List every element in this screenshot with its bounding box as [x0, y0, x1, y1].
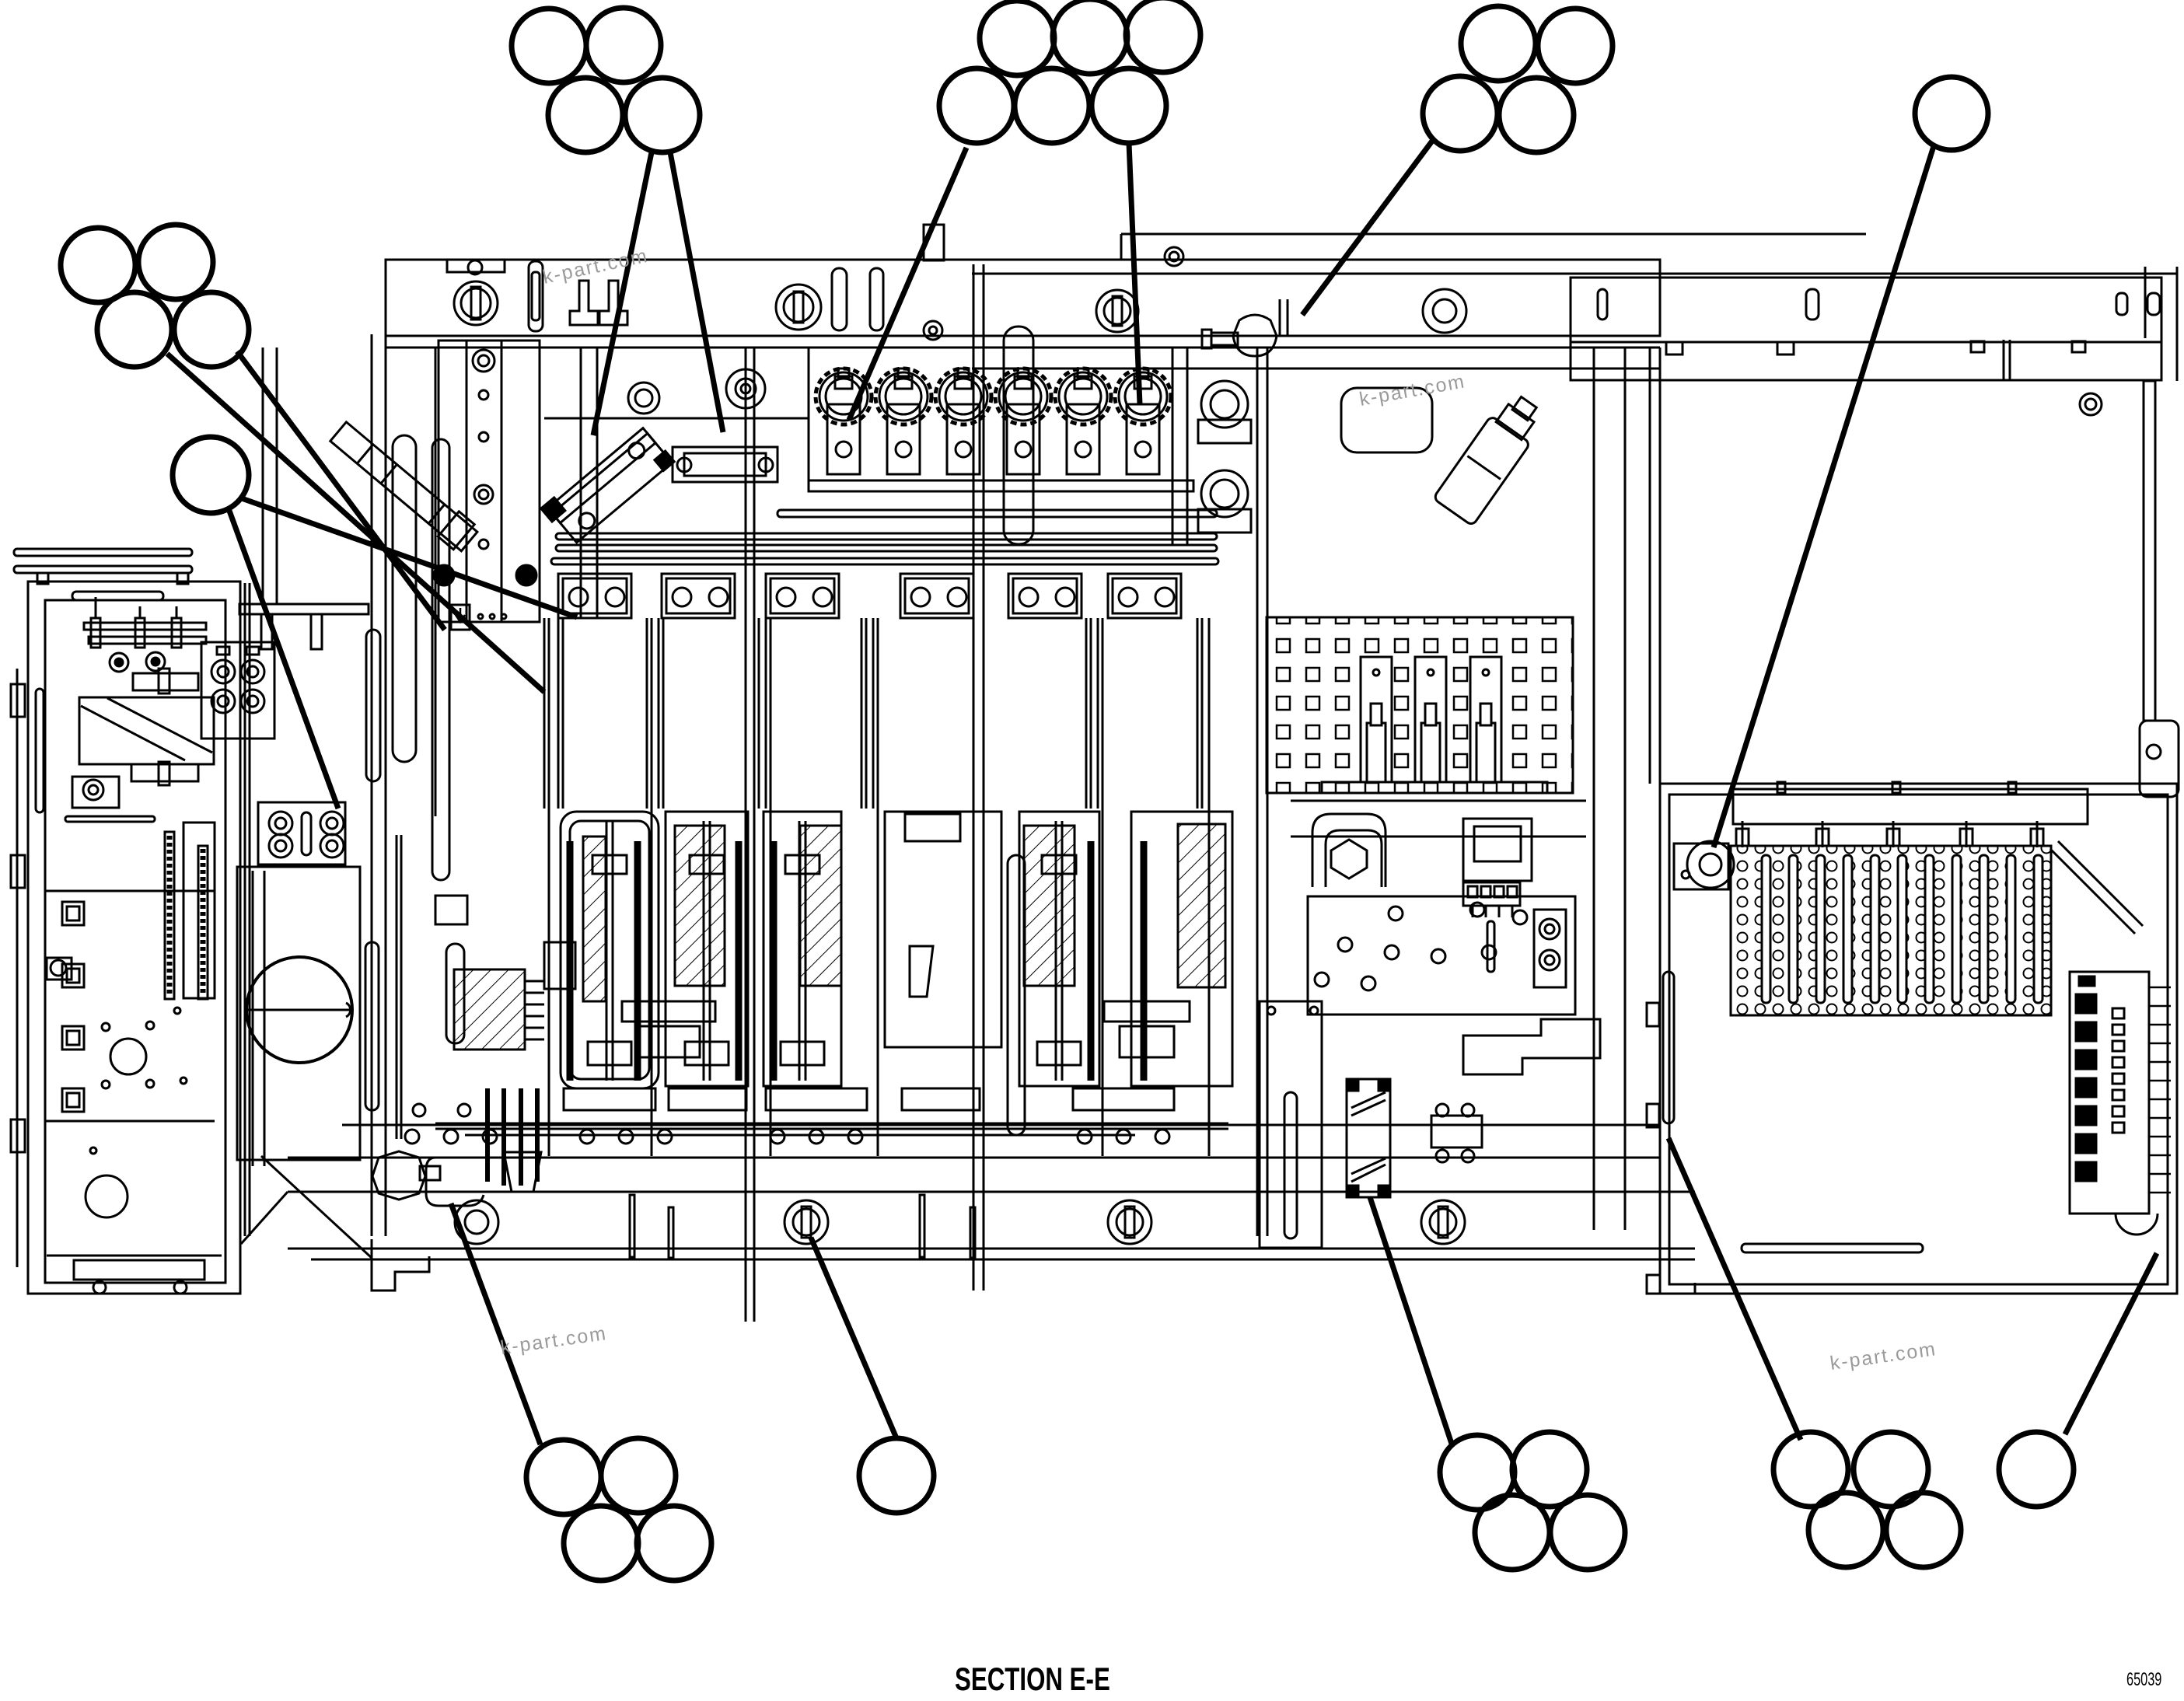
- svg-text:SECTION E-E: SECTION E-E: [955, 1660, 1110, 1697]
- svg-text:65039: 65039: [2126, 1669, 2161, 1690]
